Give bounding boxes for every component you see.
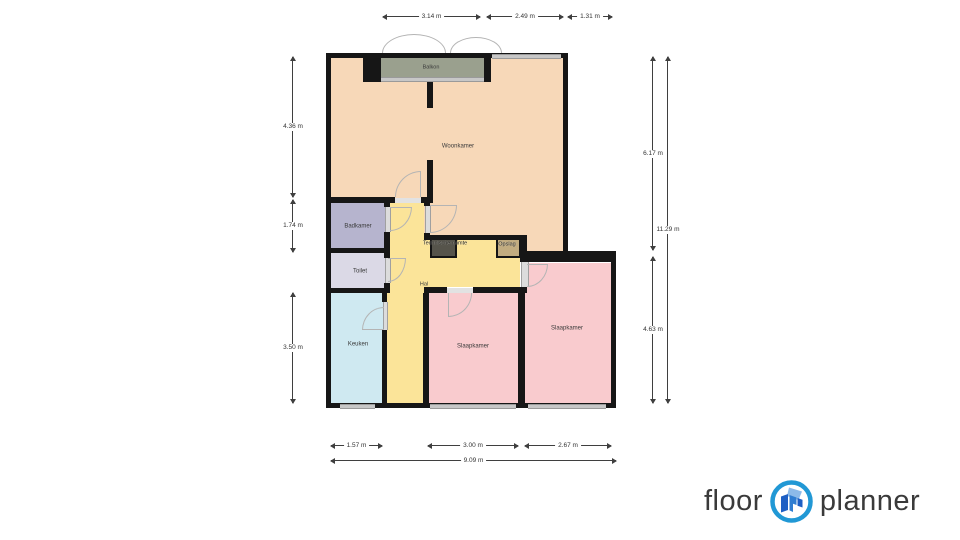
wall-hall-bedroom-center-right (473, 287, 523, 293)
wall-balcony-right (484, 53, 491, 82)
window-bottom-keuken (340, 404, 375, 409)
label-balkon: Balkon (423, 65, 440, 72)
floorplanner-logo: floor planner (704, 477, 920, 525)
door-arc-balkon-right (450, 37, 502, 53)
dimension-top-2: 2.49 m (487, 16, 563, 17)
door-arc-balkon-left (382, 34, 446, 53)
dimension-label: 4.36 m (280, 123, 306, 131)
dimension-bottom-1: 1.57 m (331, 445, 382, 446)
wall-keuken-right-stub-top (382, 293, 387, 302)
wall-hall-bedroom-right (520, 240, 527, 262)
dimension-label: 2.67 m (555, 442, 581, 450)
floorplanner-logo-icon (769, 479, 814, 524)
dimension-top-3: 1.31 m (568, 16, 612, 17)
dimension-label: 3.14 m (419, 13, 445, 21)
wall-keuken-right-stub-bottom (382, 330, 387, 403)
wall-balcony-stub (427, 80, 433, 108)
logo-word-floor: floor (704, 477, 763, 525)
dimension-right-outer: 11.29 m (667, 57, 668, 403)
wall-hall-bedroom-vertical (423, 293, 429, 403)
dimension-label: 4.63 m (640, 326, 666, 334)
wall-badkamer-toilet (326, 248, 390, 253)
dimension-label: 3.00 m (460, 442, 486, 450)
door-threshold-hall-woonkamer (395, 198, 421, 203)
wall-right-upper (563, 53, 568, 256)
window-top (492, 54, 561, 59)
dimension-bottom-2: 3.00 m (428, 445, 518, 446)
room-slaapkamer-right (525, 263, 611, 403)
dimension-label: 2.49 m (512, 13, 538, 21)
dimension-label: 1.74 m (280, 222, 306, 230)
dimension-top-1: 3.14 m (383, 16, 480, 17)
floorplan-canvas: Balkon Woonkamer Badkamer Toilet Keuken … (0, 0, 960, 540)
wall-hall-woonkamer (424, 235, 527, 240)
dimension-right-2: 4.63 m (652, 257, 653, 403)
wall-left (326, 53, 331, 408)
wall-badkamer-right-stub-bottom (384, 232, 390, 248)
wall-bedrooms-divider (518, 287, 525, 403)
dimension-left-3: 3.50 m (292, 293, 293, 403)
wall-badkamer-top (326, 197, 390, 203)
wall-balcony-left (363, 53, 381, 82)
label-slaapkamer-center: Slaapkamer (457, 344, 489, 351)
dimension-left-1: 4.36 m (292, 57, 293, 197)
wall-right-lower (611, 251, 616, 408)
label-woonkamer: Woonkamer (442, 144, 474, 151)
label-slaapkamer-right: Slaapkamer (551, 326, 583, 333)
label-toilet: Toilet (353, 269, 367, 276)
label-badkamer: Badkamer (344, 224, 371, 231)
door-threshold-slaapkamer-center (447, 288, 473, 293)
dimension-label: 1.31 m (577, 13, 603, 21)
dimension-label: 9.09 m (461, 457, 487, 465)
logo-word-planner: planner (820, 477, 920, 525)
room-hal-vertical (385, 203, 424, 403)
wall-toilet-keuken (326, 288, 390, 293)
dimension-label: 1.57 m (344, 442, 370, 450)
label-opslag: Opslag (498, 241, 515, 248)
label-keuken: Keuken (348, 342, 368, 349)
wall-woonkamer-stub (427, 160, 433, 197)
dimension-right-1: 6.17 m (652, 57, 653, 250)
window-balcony-door-line (381, 77, 484, 82)
window-bottom-slaapkamer-center (430, 404, 516, 409)
window-bottom-slaapkamer-right (528, 404, 606, 409)
dimension-label: 3.50 m (280, 344, 306, 352)
dimension-left-2: 1.74 m (292, 200, 293, 252)
label-technische-ruimte: Technische ruimte (423, 241, 467, 248)
dimension-bottom-total: 9.09 m (331, 460, 616, 461)
dimension-bottom-3: 2.67 m (525, 445, 611, 446)
wall-bedroom-right-top (527, 251, 616, 262)
dimension-label: 6.17 m (640, 150, 666, 158)
dimension-label: 11.29 m (653, 226, 682, 234)
